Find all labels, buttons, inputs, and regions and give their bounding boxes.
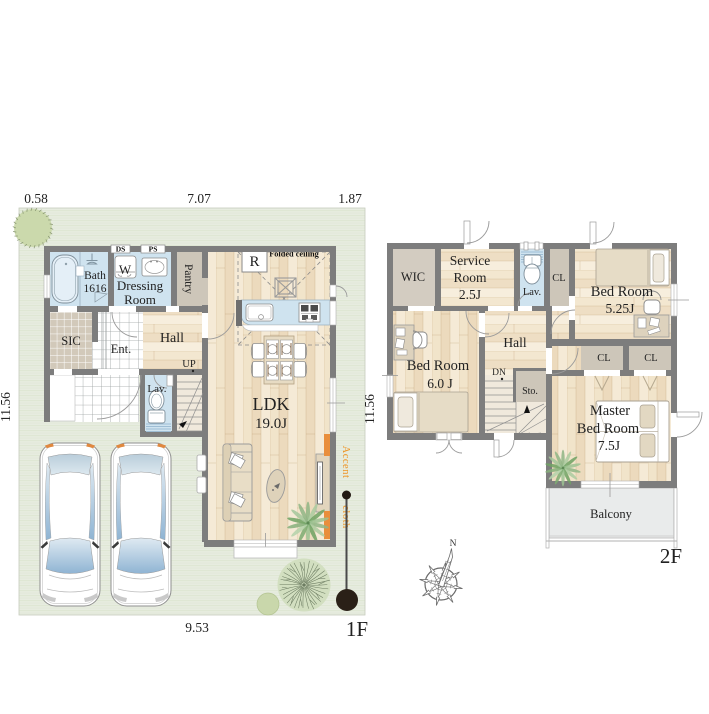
svg-text:1F: 1F: [346, 617, 368, 641]
svg-text:5.25J: 5.25J: [606, 301, 635, 316]
svg-text:DN: DN: [492, 368, 506, 378]
svg-text:Sto.: Sto.: [522, 386, 538, 397]
svg-text:WIC: WIC: [401, 270, 425, 284]
svg-text:R: R: [249, 254, 259, 270]
svg-text:Bed Room: Bed Room: [591, 284, 654, 300]
svg-text:LDK: LDK: [253, 394, 290, 414]
svg-text:Lav.: Lav.: [147, 383, 166, 395]
svg-text:Room: Room: [453, 270, 487, 285]
svg-text:CL: CL: [644, 353, 657, 364]
svg-text:11.56: 11.56: [0, 392, 13, 422]
svg-text:Bath: Bath: [84, 270, 106, 282]
svg-text:Balcony: Balcony: [590, 507, 632, 521]
svg-text:Dressing: Dressing: [117, 278, 164, 293]
svg-text:7.07: 7.07: [187, 191, 211, 206]
svg-text:7.5J: 7.5J: [598, 438, 620, 453]
svg-text:2.5J: 2.5J: [459, 287, 481, 302]
svg-text:Lav.: Lav.: [523, 287, 541, 298]
svg-text:0.58: 0.58: [24, 191, 48, 206]
svg-text:Master: Master: [590, 403, 630, 419]
svg-text:Hall: Hall: [160, 331, 184, 346]
svg-text:11.56: 11.56: [362, 394, 377, 424]
svg-text:Service: Service: [450, 253, 490, 268]
svg-text:CL: CL: [597, 353, 610, 364]
svg-text:CL: CL: [552, 273, 565, 284]
svg-text:2F: 2F: [660, 544, 682, 568]
svg-text:DS: DS: [116, 245, 126, 254]
svg-text:19.0J: 19.0J: [255, 416, 287, 432]
svg-text:Ent.: Ent.: [111, 342, 131, 356]
svg-text:W: W: [119, 262, 132, 277]
svg-text:6.0 J: 6.0 J: [427, 376, 453, 391]
svg-text:9.53: 9.53: [185, 620, 209, 635]
svg-text:Hall: Hall: [503, 335, 526, 350]
svg-text:Accent: Accent: [340, 446, 351, 479]
svg-text:PS: PS: [149, 245, 158, 254]
svg-text:Pantry: Pantry: [182, 264, 194, 294]
svg-text:1.87: 1.87: [338, 191, 362, 206]
svg-text:Room: Room: [124, 292, 156, 307]
svg-text:UP: UP: [182, 359, 196, 370]
svg-text:N: N: [450, 539, 457, 549]
svg-text:1616: 1616: [84, 283, 107, 295]
svg-text:SIC: SIC: [61, 334, 80, 348]
svg-text:Bed Room: Bed Room: [577, 421, 640, 437]
svg-text:Bed Room: Bed Room: [407, 358, 470, 374]
